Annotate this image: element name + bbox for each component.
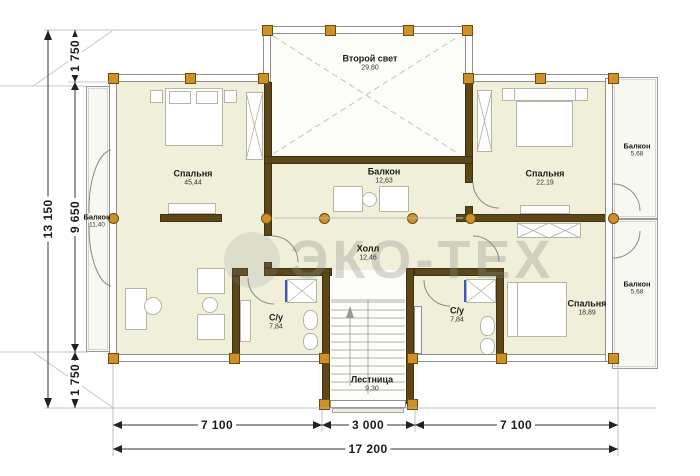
column <box>325 25 336 36</box>
column <box>185 73 196 84</box>
nightstand <box>150 90 163 103</box>
dim-left-total: 13 150 <box>41 196 55 241</box>
dim-left-middle: 9 650 <box>68 198 82 236</box>
column <box>496 353 507 364</box>
stair-wall <box>322 268 330 404</box>
shower <box>466 279 496 303</box>
window-wall <box>263 26 473 34</box>
wardrobe <box>477 90 492 152</box>
floor-plan: ЭКО-ТЕХ <box>0 0 700 476</box>
wall <box>414 268 504 276</box>
column <box>229 353 240 364</box>
column <box>403 25 414 36</box>
armchair <box>333 186 363 212</box>
column <box>608 353 619 364</box>
room-label-bathroom-left: С/у 7,84 <box>269 312 283 331</box>
wall <box>465 82 473 183</box>
shower-accent <box>285 280 287 302</box>
column <box>608 213 619 224</box>
nightstand <box>502 88 515 101</box>
room-label-balcony-right-bottom: Балкон 5,68 <box>623 280 650 297</box>
column <box>535 73 546 84</box>
room-label-bedroom-right-top: Спальня 22,19 <box>526 168 565 187</box>
room-label-hall: Холл 12,46 <box>357 243 380 262</box>
window-wall <box>330 400 406 408</box>
column <box>608 73 619 84</box>
window-wall <box>409 354 613 362</box>
room-label-bedroom-right-bottom: Спальня 18,89 <box>568 298 607 317</box>
column <box>258 73 269 84</box>
bidet <box>480 338 495 355</box>
divider-wall <box>160 214 222 222</box>
room-label-stairs: Лестница 9,30 <box>351 374 393 393</box>
shower <box>287 279 317 303</box>
column <box>108 73 119 84</box>
dresser <box>168 203 216 214</box>
column <box>463 73 474 84</box>
dim-left-bottom: 1 750 <box>68 361 82 399</box>
column <box>261 213 272 224</box>
round-table <box>362 192 377 207</box>
wardrobe <box>517 223 581 238</box>
shower-accent <box>464 280 466 302</box>
column <box>319 213 330 224</box>
pillow <box>169 91 191 104</box>
wall <box>496 276 504 354</box>
dim-bottom-total: 17 200 <box>345 442 390 456</box>
armchair <box>197 268 225 294</box>
room-label-bedroom-large: Спальня 45,44 <box>174 168 213 187</box>
pillow-band <box>507 282 518 337</box>
room-label-balcony-right-top: Балкон 5,68 <box>623 142 650 159</box>
side-table <box>202 297 218 313</box>
window-wall <box>113 354 329 362</box>
railing-wall <box>264 156 473 164</box>
desk-chair <box>144 297 162 315</box>
room-label-balcony-left: Балкон 11,40 <box>83 213 110 230</box>
toilet <box>480 316 495 336</box>
bidet <box>303 333 318 350</box>
bed-right-top <box>516 101 573 147</box>
nightstand <box>224 90 237 103</box>
wardrobe <box>246 92 263 160</box>
wall <box>456 214 613 222</box>
column <box>465 213 476 224</box>
washbasin-counter <box>240 300 251 342</box>
column <box>407 353 418 364</box>
interior-wall <box>414 306 422 354</box>
dim-left-top: 1 750 <box>68 37 82 75</box>
wall <box>232 268 248 276</box>
room-label-second-light: Второй свет 29,80 <box>343 53 398 72</box>
armchair <box>379 186 409 212</box>
pillow <box>196 91 218 104</box>
wall <box>264 82 272 218</box>
room-label-bathroom-right: С/у 7,84 <box>450 305 464 324</box>
dim-bottom-center: 3 000 <box>349 418 387 432</box>
column <box>319 353 330 364</box>
column <box>407 213 418 224</box>
dim-bottom-left: 7 100 <box>198 418 236 432</box>
nightstand <box>575 88 588 101</box>
column <box>462 25 473 36</box>
column <box>108 353 119 364</box>
column <box>319 399 330 410</box>
window-sill <box>332 408 404 413</box>
toilet <box>303 310 318 330</box>
dim-bottom-right: 7 100 <box>497 418 535 432</box>
column <box>407 399 418 410</box>
dresser <box>520 205 570 214</box>
armchair <box>197 314 225 340</box>
column <box>262 25 273 36</box>
stair-wall <box>406 268 414 404</box>
wall <box>232 276 240 356</box>
room-label-inner-balcony: Балкон 12,63 <box>368 166 401 185</box>
